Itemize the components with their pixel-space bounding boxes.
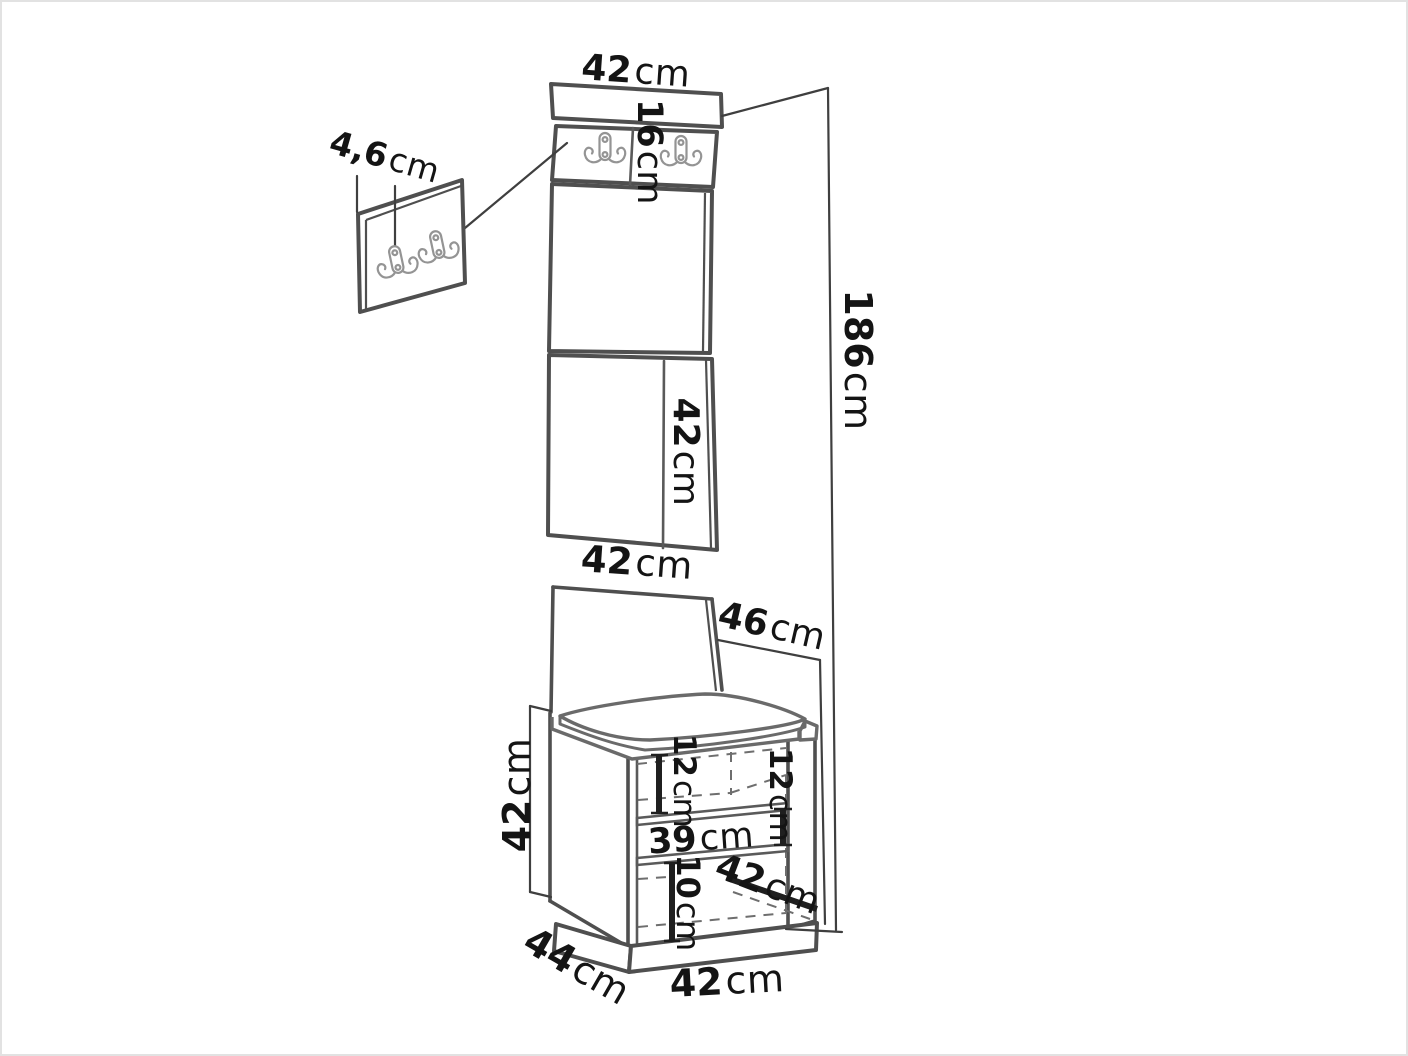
dim-hook-panel-thickness-label: 4,6cm (325, 122, 444, 191)
dim-panel-width-label: 42cm (580, 537, 695, 588)
plinth-front-face (629, 923, 817, 972)
bench-height-top-tick (530, 706, 551, 711)
dim-bench-inner-depth-label: 42cm (710, 845, 826, 922)
total-height-top-line (722, 88, 828, 116)
dim-top-width-label: 42cm (580, 47, 692, 96)
dim-hook-strip-height-label: 16cm (629, 99, 669, 205)
panel-segment-lower-left (551, 587, 553, 712)
dim-bench-width-label: 42cm (669, 956, 786, 1006)
dim-lower-compartment-height-label: 10cm (669, 854, 707, 951)
panel-segment-lower-top (553, 587, 712, 599)
furniture-dimension-diagram: 42cm 16cm 4,6cm 186cm 42cm 42cm 46cm 42c… (0, 0, 1408, 1056)
bench-height-bottom-tick (530, 892, 551, 897)
dim-seat-depth-label: 46cm (714, 594, 829, 658)
dim-total-height-label: 186cm (836, 289, 880, 430)
panel-segment-upper (549, 184, 712, 353)
seat-board-step (800, 721, 817, 740)
panel-segment-middle-divider (663, 361, 664, 548)
dim-bench-height-label: 42cm (495, 738, 539, 853)
hook-panel (358, 180, 465, 312)
dim-panel-segment-height-label: 42cm (666, 398, 707, 507)
total-height-line (828, 88, 836, 930)
dim-opening-left-height-label: 12cm (666, 734, 702, 828)
dim-opening-right-height-label: 12cm (762, 748, 798, 842)
